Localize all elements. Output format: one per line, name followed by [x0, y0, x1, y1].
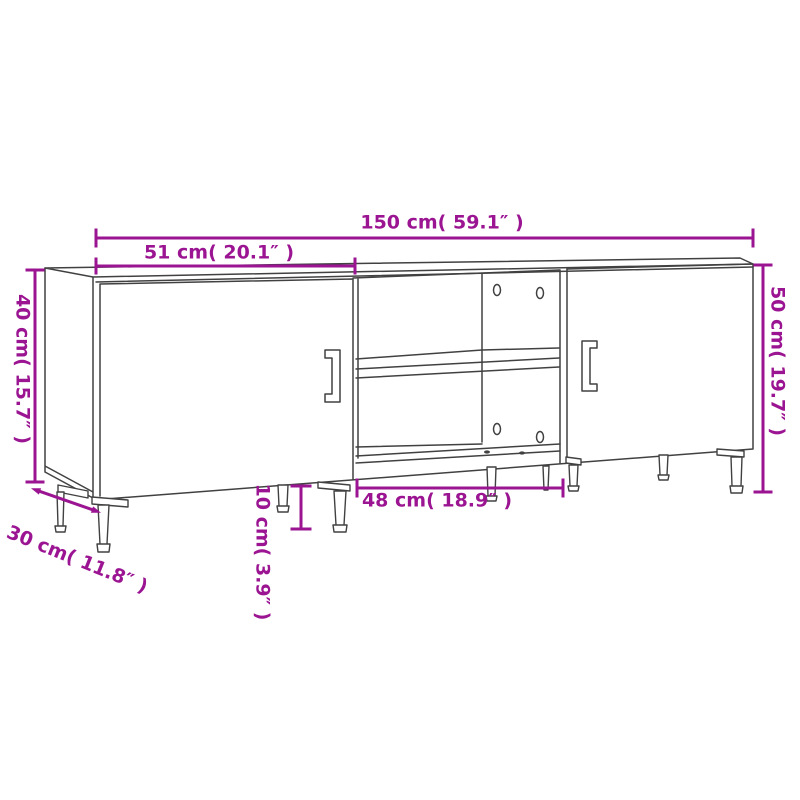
- dimension-label-left-height: 40 cm( 15.7″ ): [12, 294, 33, 444]
- dimension-label-leg-height: 10 cm( 3.9″ ): [252, 484, 273, 621]
- opening-bottom-panel: [356, 444, 560, 463]
- dimension-label-total-width: 150 cm( 59.1″ ): [360, 213, 523, 234]
- dimension-label-right-height: 50 cm( 19.7″ ): [767, 286, 788, 436]
- depth-arrowhead-left: [31, 488, 41, 494]
- cabinet-diagram-svg: [0, 0, 800, 800]
- middle-shelf: [356, 348, 559, 378]
- dimension-label-left-width: 51 cm( 20.1″ ): [144, 243, 294, 264]
- furniture-dimension-diagram: 150 cm( 59.1″ ) 51 cm( 20.1″ ) 40 cm( 15…: [0, 0, 800, 800]
- cabinet-front-outline: [93, 264, 753, 500]
- right-door-handle: [582, 341, 597, 391]
- cabinet-left-side-panel: [45, 268, 93, 500]
- dim-line-leg-height: [292, 486, 310, 529]
- dimension-label-opening-width: 48 cm( 18.9″ ): [362, 491, 512, 512]
- middle-opening: [353, 269, 567, 463]
- left-door: [100, 279, 353, 496]
- left-door-handle: [325, 350, 340, 402]
